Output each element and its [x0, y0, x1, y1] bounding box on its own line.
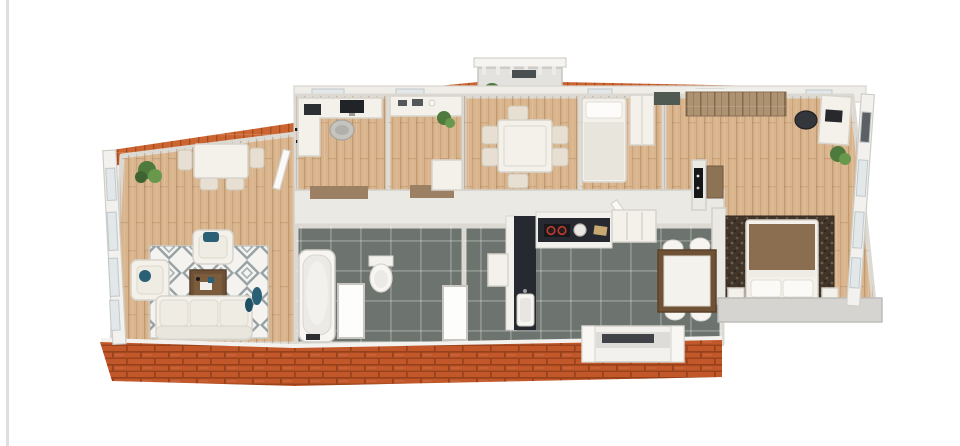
chair: [508, 174, 528, 188]
window-right-dark: [860, 112, 871, 143]
kitchen-counter-horizontal: [536, 212, 612, 248]
burner: [558, 227, 566, 235]
armchair-left: [131, 260, 169, 300]
brown-cabinet: [707, 166, 723, 198]
kitchen-table-top: [664, 256, 710, 306]
bay-window-glass: [602, 334, 654, 343]
double-bed: [746, 220, 818, 302]
floor-plan-page: [0, 0, 960, 446]
armchair-top: [193, 230, 233, 264]
chair: [552, 126, 568, 144]
appliance: [412, 99, 423, 106]
table-top: [194, 144, 248, 178]
printer: [304, 104, 321, 115]
window-right-3: [853, 212, 864, 249]
kitchen-counter-vertical: [506, 216, 536, 330]
blanket: [584, 122, 624, 180]
desk-chair: [795, 111, 817, 129]
chair: [482, 148, 498, 166]
tall-cabinet: [612, 210, 656, 242]
chair: [552, 148, 568, 166]
balcony-railing: [474, 58, 566, 67]
toilet: [369, 256, 393, 292]
floor-plan-canvas: [0, 0, 960, 446]
closet-row: [686, 89, 786, 116]
kitchen-table-set: [658, 238, 716, 321]
laptop: [825, 109, 843, 122]
cutting-board: [593, 225, 607, 236]
blue-throw: [203, 232, 219, 242]
bath-tap: [306, 334, 320, 340]
window-left-4: [110, 300, 121, 330]
sofa: [156, 296, 252, 340]
appliance: [398, 100, 407, 106]
storage-cabinet: [432, 160, 462, 190]
bed-blanket: [749, 224, 815, 274]
monitor: [340, 100, 364, 113]
bath-mat-2: [443, 286, 467, 340]
balcony-door-mat: [512, 70, 536, 78]
bedroom-desk: [818, 95, 851, 145]
dining-table: [498, 120, 552, 172]
bath-mat-1: [338, 284, 364, 338]
entry-mat: [654, 92, 680, 105]
burner: [547, 227, 555, 235]
pillow: [751, 280, 781, 297]
chair: [226, 178, 244, 190]
bay-window: [582, 326, 684, 362]
single-bed: [582, 98, 626, 182]
chair: [508, 106, 528, 120]
window-left-2: [107, 212, 118, 250]
chair: [482, 126, 498, 144]
page-edge-line: [6, 0, 9, 446]
chair: [250, 148, 264, 168]
chair: [178, 150, 192, 170]
window-left-3: [108, 258, 119, 296]
window-right-2: [856, 160, 867, 197]
office-chair: [330, 120, 354, 140]
pillow: [783, 280, 813, 297]
bathtub: [299, 250, 335, 342]
pillow: [586, 102, 622, 118]
window-left-1: [106, 168, 117, 200]
door-mat-1: [310, 186, 368, 199]
blue-cushion: [139, 270, 151, 282]
white-cabinet: [488, 254, 508, 286]
pot: [574, 224, 586, 236]
chair: [200, 178, 218, 190]
window-right-4: [850, 258, 861, 289]
tv-panel: [694, 168, 703, 198]
